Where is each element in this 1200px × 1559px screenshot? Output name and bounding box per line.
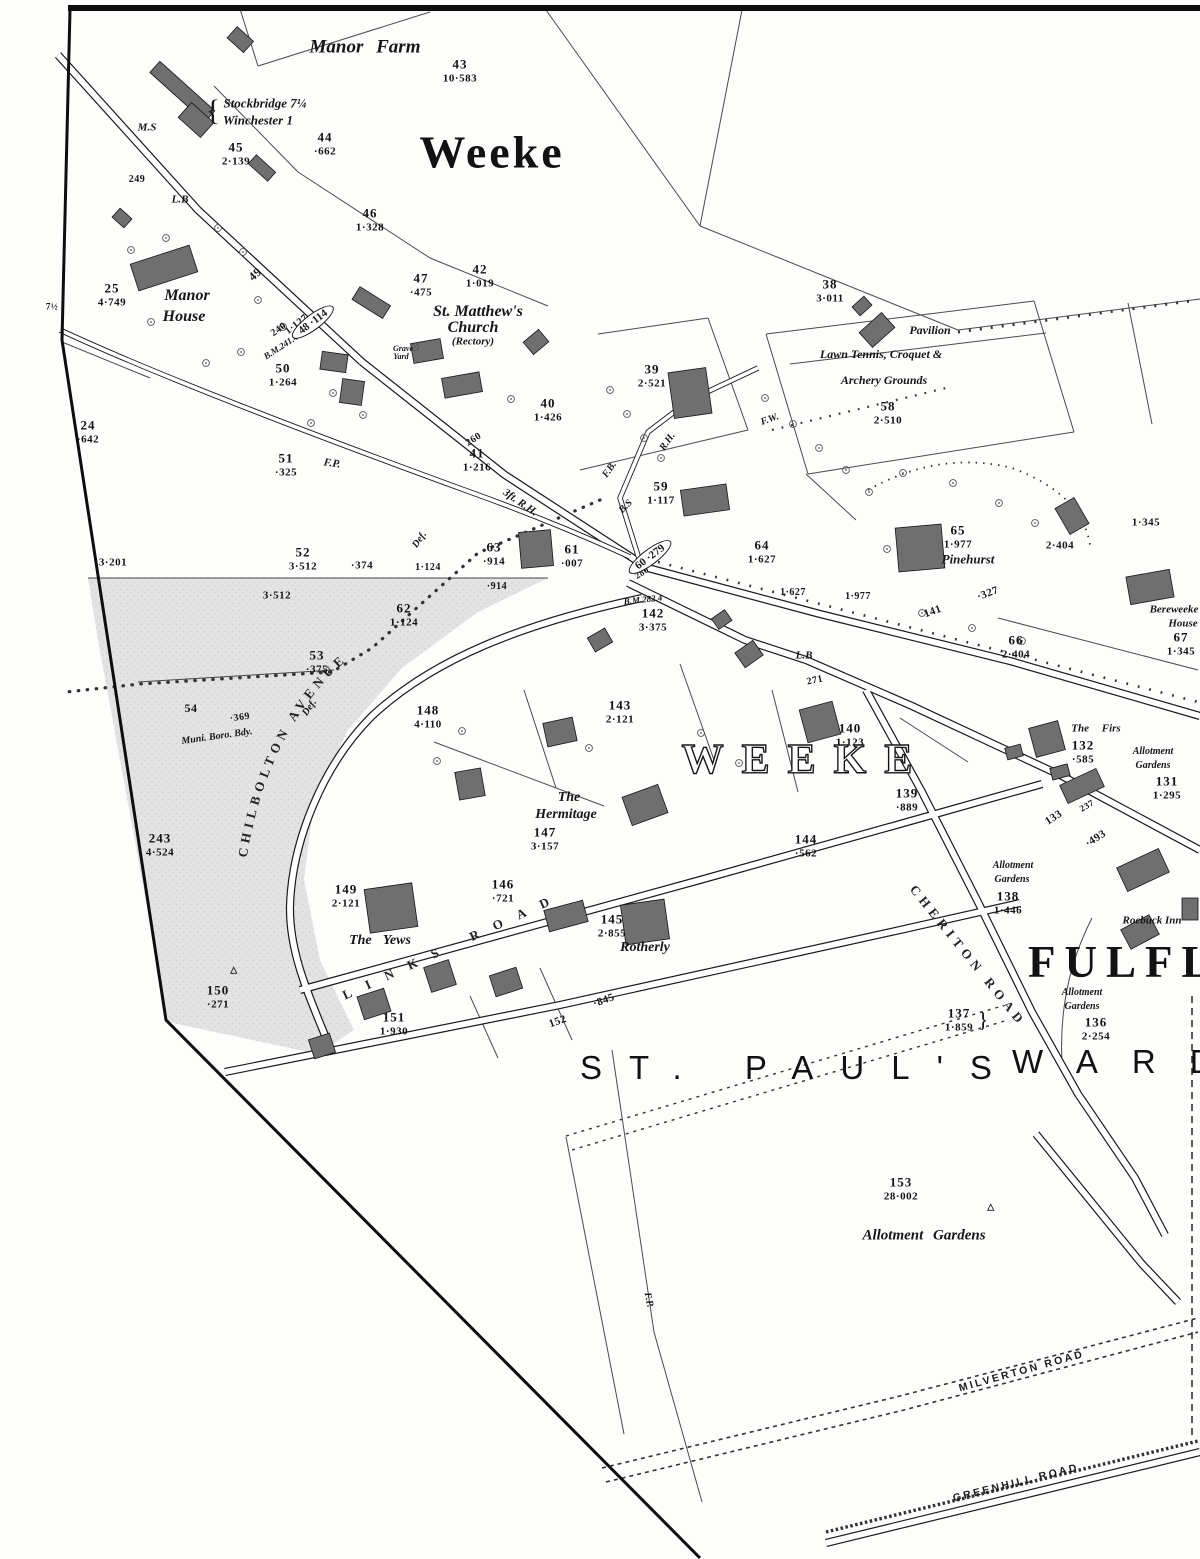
footpath-lanes bbox=[60, 330, 758, 562]
road-name-milverton-road: MILVERTON ROAD bbox=[958, 1348, 1086, 1394]
road-name-layer: CHILBOLTON AVENUE LINKS ROAD CHERITON RO… bbox=[235, 650, 1086, 1504]
lanes-inner-fill bbox=[60, 330, 758, 562]
svg-text:MILVERTON ROAD: MILVERTON ROAD bbox=[958, 1348, 1086, 1394]
map-linework: CHILBOLTON AVENUE LINKS ROAD CHERITON RO… bbox=[0, 0, 1200, 1559]
map-canvas: CHILBOLTON AVENUE LINKS ROAD CHERITON RO… bbox=[0, 0, 1200, 1559]
